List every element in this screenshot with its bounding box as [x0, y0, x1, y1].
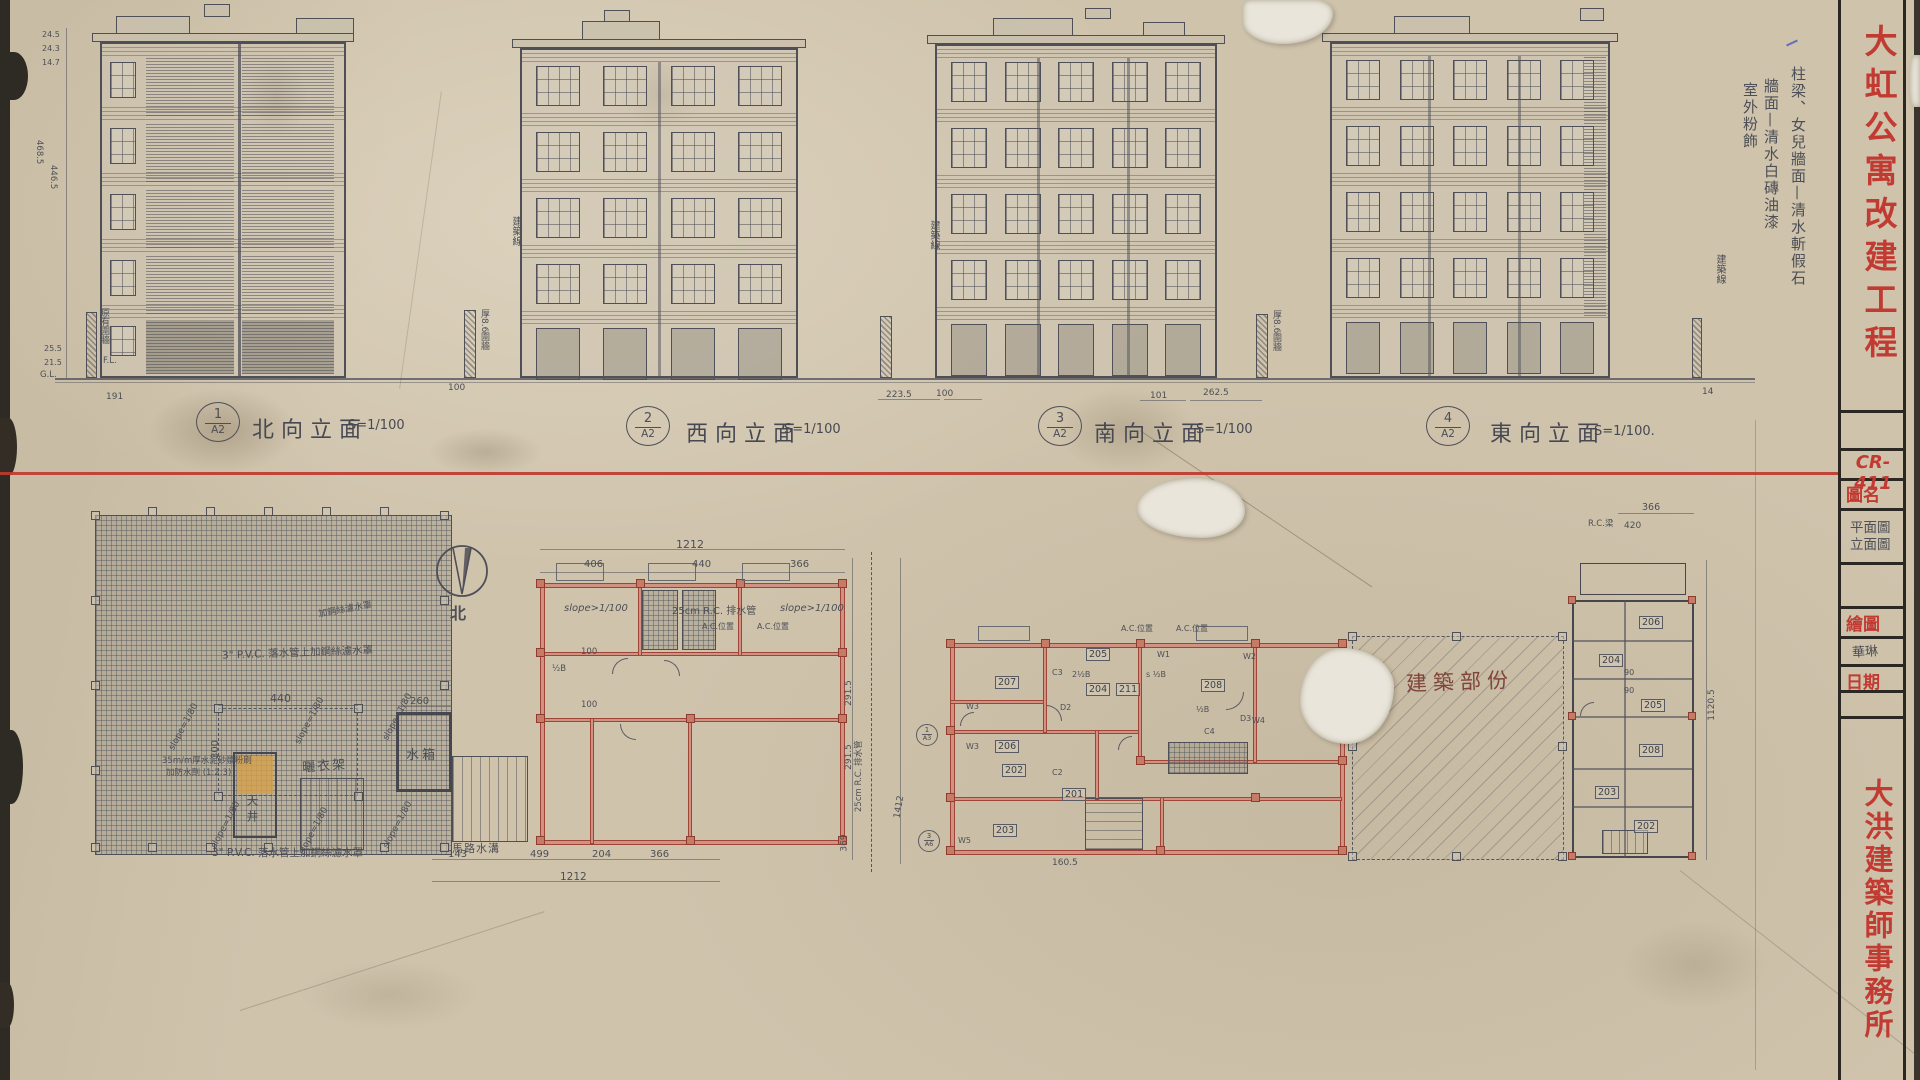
tag-d3: D3	[1240, 714, 1251, 723]
room-206: 206	[995, 740, 1019, 753]
tag-w2: W2	[1243, 652, 1256, 661]
red-column	[686, 714, 695, 723]
plans-layer	[0, 0, 1920, 1080]
room-202: 202	[1002, 764, 1026, 777]
room-207: 207	[995, 676, 1019, 689]
half-b-note: ½B	[552, 664, 566, 674]
drain-note-vertical: 25cm R.C. 排水管	[852, 740, 864, 812]
bathroom-tiled	[682, 590, 716, 650]
plan-column	[1348, 852, 1357, 861]
room-205: 205	[1641, 699, 1665, 712]
project-title: 大虹公寓改建工程	[1854, 24, 1902, 368]
roof-dim-440: 440	[270, 692, 291, 705]
plan-column	[148, 843, 157, 852]
red-column	[838, 648, 847, 657]
plan-d-stair	[1602, 830, 1648, 854]
drying-rack-label: 曬衣架	[301, 753, 347, 775]
red-column	[1338, 639, 1347, 648]
title-block-divider	[1838, 410, 1906, 413]
boundary-dashed-line	[871, 552, 872, 872]
planb-bot-total: 1212	[560, 871, 587, 883]
door-swing-arc	[620, 724, 636, 740]
light-well-label: 天井	[244, 794, 261, 826]
red-column	[536, 648, 545, 657]
red-column	[1568, 712, 1576, 720]
ac-label: A.C.位置	[702, 621, 734, 632]
red-column	[946, 793, 955, 802]
field-date: 日期	[1842, 668, 1904, 693]
red-column	[636, 579, 645, 588]
red-wall	[950, 850, 1345, 855]
red-column	[536, 714, 545, 723]
planb-dim-a: 406	[584, 559, 603, 570]
ref-circle-3-A6: 3 A6	[918, 830, 940, 852]
plan-column	[91, 766, 100, 775]
red-wall	[590, 718, 594, 844]
plan-d-wall	[1572, 716, 1692, 718]
field-label: 繪圖	[1846, 610, 1880, 635]
ac-label: A.C.位置	[1121, 623, 1153, 634]
red-wall	[950, 797, 1342, 801]
note-s-half-b: s ½B	[1146, 670, 1166, 679]
plan-d-wall	[1572, 640, 1692, 642]
title-block-divider	[1838, 716, 1906, 719]
office-name: 大洪建築師事務所	[1856, 778, 1898, 1042]
room-203: 203	[993, 824, 1017, 837]
red-wall	[1160, 797, 1164, 852]
pland-dim-90b: 90	[1624, 686, 1634, 695]
ac-label: A.C.位置	[1176, 623, 1208, 634]
red-column	[1156, 846, 1165, 855]
door-swing-arc	[1226, 692, 1244, 710]
tag-d2: D2	[1060, 703, 1071, 712]
room-201: 201	[1062, 788, 1086, 801]
red-column	[946, 726, 955, 735]
title-block-divider	[1838, 508, 1906, 511]
door-swing-arc	[664, 660, 680, 676]
title-block-divider	[1838, 636, 1906, 639]
tag-w3: W3	[966, 702, 979, 711]
ac-label: A.C.位置	[757, 621, 789, 632]
rc-drain-note: 25cm R.C. 排水管	[672, 602, 756, 617]
note-2half-b: 2½B	[1072, 670, 1090, 679]
pland-dim-side: 1120.5	[1707, 689, 1717, 721]
plan-column	[214, 792, 223, 801]
room-208: 208	[1639, 744, 1663, 757]
plan-column	[1452, 632, 1461, 641]
title-block-divider	[1838, 664, 1906, 667]
plan-column	[91, 681, 100, 690]
red-wall	[950, 643, 1345, 648]
plan-column	[1348, 632, 1357, 641]
north-compass-icon	[434, 544, 490, 602]
ref-circle-1-A3: 1 A3	[916, 724, 938, 746]
dim-chain-line	[852, 558, 853, 860]
plan-column	[1558, 742, 1567, 751]
water-tank-label: 水箱	[406, 744, 438, 763]
ref-sheet: A3	[923, 735, 932, 743]
plan-d-wall	[1572, 806, 1692, 808]
planc-dim: 160.5	[1052, 858, 1078, 868]
field-drawn-by: 繪圖	[1842, 610, 1904, 635]
door-swing-arc	[960, 712, 974, 726]
slope-note-b1: slope>1/100	[564, 603, 628, 614]
bathroom-tiled	[642, 590, 678, 650]
tag-w3b: W3	[966, 742, 979, 751]
plan-d-wall	[1572, 768, 1692, 770]
planb-bot-d: 366	[650, 849, 669, 860]
tag-c2: C2	[1052, 768, 1063, 777]
plan-column	[264, 507, 273, 516]
red-column	[946, 639, 955, 648]
pland-note: R.C.梁	[1588, 517, 1613, 529]
plan-d-roof-slab	[1580, 563, 1686, 595]
north-label: 北	[450, 600, 466, 624]
red-column	[1568, 596, 1576, 604]
door-swing-arc	[1118, 736, 1132, 750]
title-block-divider	[1838, 606, 1906, 609]
tag-w1: W1	[1157, 650, 1170, 659]
planb-dim-c: 366	[790, 559, 809, 570]
plan-column	[1452, 852, 1461, 861]
red-wall	[688, 718, 692, 844]
cement-note-2: 加防水劑 (1:2:3)	[166, 766, 231, 778]
red-column	[1041, 639, 1050, 648]
planb-dim-total: 1212	[676, 538, 704, 551]
dim-100: 100	[581, 700, 597, 710]
field-label: 日期	[1846, 668, 1880, 693]
plan-column	[322, 507, 331, 516]
hatch-area-label: 建築部份	[1406, 664, 1515, 698]
dim-100: 100	[581, 647, 597, 657]
room-202: 202	[1634, 820, 1658, 833]
balcony	[978, 626, 1030, 641]
plan-column	[440, 681, 449, 690]
bathroom-tiled	[1168, 742, 1248, 774]
red-column	[1688, 852, 1696, 860]
red-column	[1688, 596, 1696, 604]
ref-sheet: A6	[925, 841, 934, 849]
title-block-divider	[1838, 562, 1906, 565]
red-column	[1251, 639, 1260, 648]
title-block-divider	[1838, 448, 1906, 451]
room-206: 206	[1639, 616, 1663, 629]
red-column	[838, 714, 847, 723]
room-211: 211	[1116, 683, 1140, 696]
plan-c-stair	[1085, 798, 1143, 850]
pland-dim-top2: 420	[1624, 521, 1641, 531]
red-wall	[540, 583, 845, 588]
plan-column	[1558, 632, 1567, 641]
room-203: 203	[1595, 786, 1619, 799]
red-wall	[950, 643, 955, 855]
red-column	[838, 579, 847, 588]
dim-line	[1618, 513, 1694, 514]
plan-column	[148, 507, 157, 516]
plan-b-stair	[452, 756, 528, 842]
room-205: 205	[1086, 648, 1110, 661]
door-swing-arc	[612, 658, 628, 674]
room-208: 208	[1201, 679, 1225, 692]
tag-c4: C4	[1204, 727, 1215, 736]
cement-note-1: 35m/m厚水泥砂漿粉刷	[162, 754, 252, 766]
pvc-note-bottom: 3" P.V.C. 落水管上加鋼絲濾水罩	[212, 845, 363, 860]
red-column	[686, 836, 695, 845]
plan-d-wall	[1572, 678, 1692, 680]
plan-d-wall	[1624, 600, 1626, 858]
red-column	[536, 579, 545, 588]
plan-column	[206, 507, 215, 516]
pland-dim-90: 90	[1624, 668, 1634, 677]
field-drawing-name: 圖名	[1842, 481, 1904, 506]
red-column	[1688, 712, 1696, 720]
dim-line	[432, 859, 720, 860]
planb-bot-b: 499	[530, 849, 549, 860]
plan-column	[380, 507, 389, 516]
red-column	[1251, 793, 1260, 802]
red-column	[946, 846, 955, 855]
slope-note-b2: slope>1/100	[780, 603, 844, 614]
red-wall	[950, 700, 1045, 704]
plan-column	[91, 596, 100, 605]
red-column	[1568, 852, 1576, 860]
paper-tear	[1910, 55, 1920, 107]
pland-dim-top: 366	[1642, 502, 1660, 513]
red-wall	[1138, 643, 1142, 763]
red-wall	[1253, 643, 1257, 763]
red-wall	[1095, 730, 1099, 800]
room-204: 204	[1086, 683, 1110, 696]
mid-dim-c: 369	[840, 834, 850, 851]
plan-column	[440, 511, 449, 520]
drafter-signature: 華琳	[1851, 640, 1878, 661]
red-column	[1338, 756, 1347, 765]
planb-bot-a: 143	[448, 849, 467, 860]
planb-dim-b: 440	[692, 559, 711, 570]
field-label: 圖名	[1846, 481, 1880, 506]
room-204: 204	[1599, 654, 1623, 667]
red-column	[1338, 846, 1347, 855]
plan-column	[1558, 852, 1567, 861]
blueprint-sheet: 原有圍牆 厚8.6圍牆 厚8.6圍牆 建築線 建築線 建築線 24.5 24.3…	[0, 0, 1920, 1080]
dim-line	[540, 572, 845, 573]
plan-d-outline	[1572, 600, 1694, 858]
drawing-name-line2: 立面圖	[1850, 533, 1891, 553]
red-column	[1136, 639, 1145, 648]
red-column	[536, 836, 545, 845]
dim-line-440	[218, 705, 358, 706]
planb-bot-c: 204	[592, 849, 611, 860]
mid-dim-a: 291.5	[844, 680, 854, 706]
tag-w4: W4	[1252, 716, 1265, 725]
red-wall	[738, 583, 742, 656]
note-half-b: ½B	[1196, 705, 1209, 714]
plan-column	[91, 511, 100, 520]
dim-chain-line	[1706, 560, 1707, 860]
plan-column	[91, 843, 100, 852]
red-column	[1136, 756, 1145, 765]
tag-w5: W5	[958, 836, 971, 845]
tag-c3: C3	[1052, 668, 1063, 677]
